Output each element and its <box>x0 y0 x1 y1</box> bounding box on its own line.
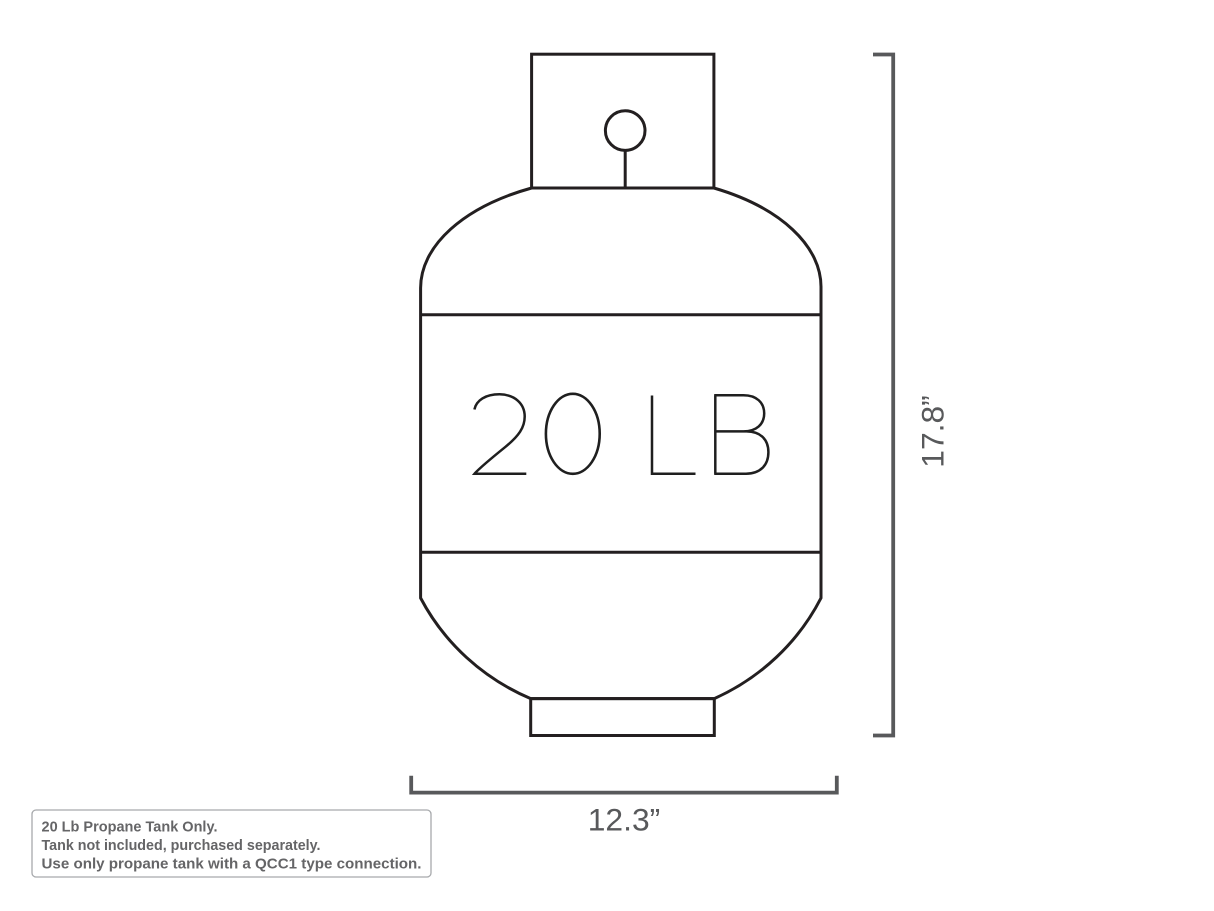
svg-text:Use only propane tank with a Q: Use only propane tank with a QCC1 type c… <box>42 855 422 872</box>
svg-text:20 Lb Propane Tank Only.: 20 Lb Propane Tank Only. <box>42 819 218 836</box>
svg-text:17.8”: 17.8” <box>915 395 951 467</box>
svg-text:Tank not included, purchased s: Tank not included, purchased separately. <box>42 837 321 854</box>
svg-text:12.3”: 12.3” <box>588 802 660 838</box>
